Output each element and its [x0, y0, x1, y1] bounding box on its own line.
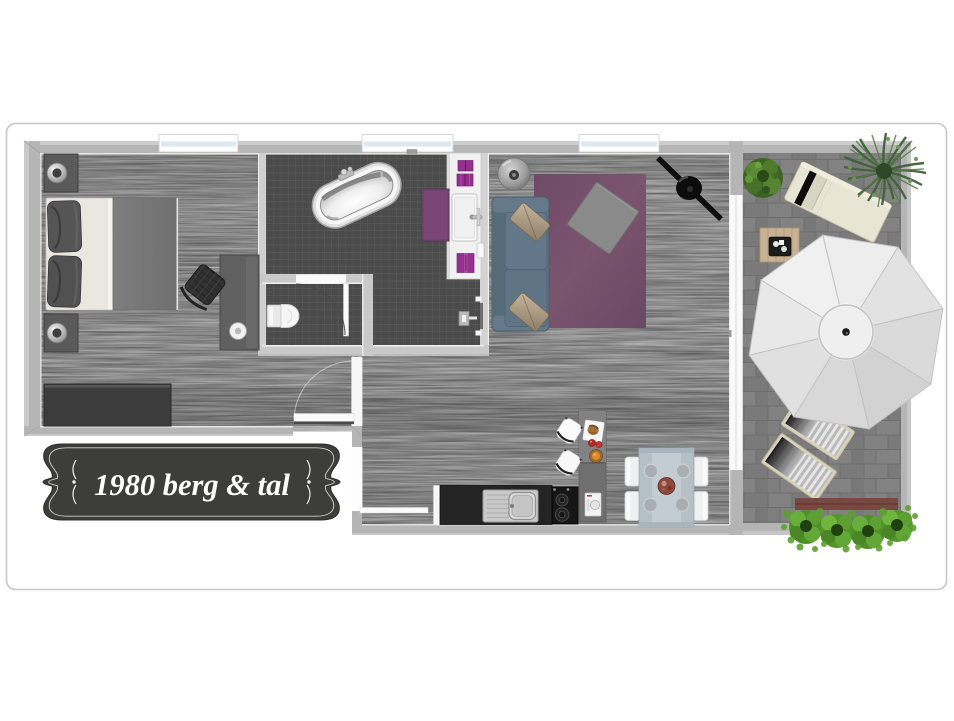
svg-text:1980 berg & tal: 1980 berg & tal [94, 468, 290, 502]
